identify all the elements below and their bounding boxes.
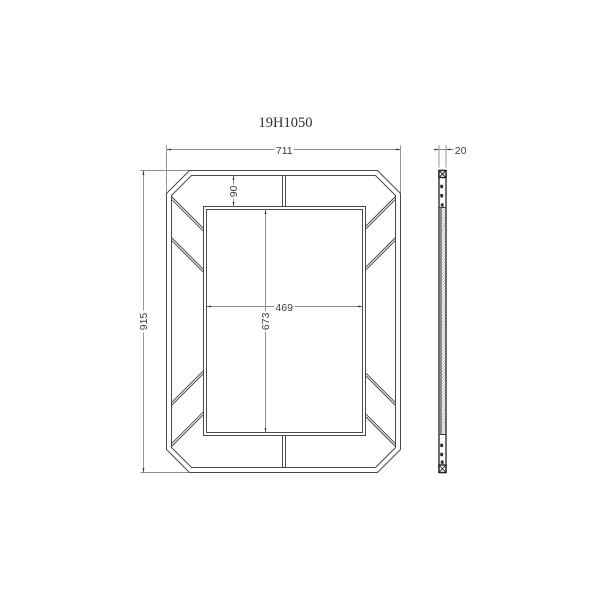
svg-text:711: 711 bbox=[276, 145, 293, 157]
svg-text:90: 90 bbox=[228, 185, 240, 197]
svg-text:469: 469 bbox=[275, 302, 293, 314]
svg-text:20: 20 bbox=[455, 145, 467, 157]
svg-text:915: 915 bbox=[138, 313, 150, 331]
svg-text:673: 673 bbox=[260, 312, 272, 330]
svg-text:19H1050: 19H1050 bbox=[259, 115, 313, 131]
